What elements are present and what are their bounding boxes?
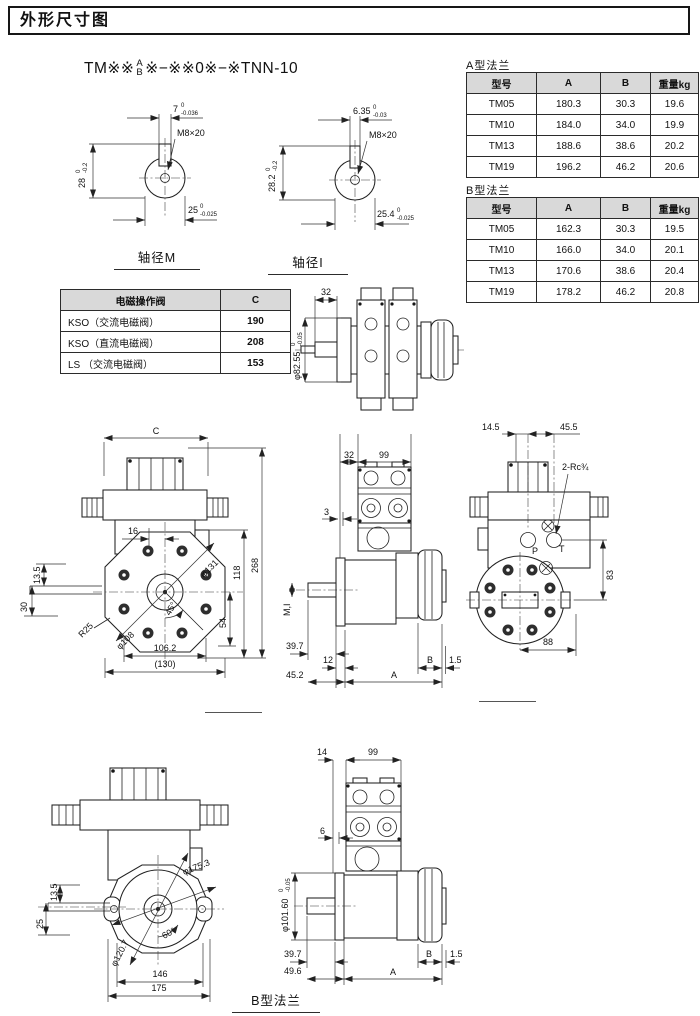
- page-title: 外形尺寸图: [8, 6, 690, 35]
- header-row: 电磁操作阀 C: [61, 290, 291, 311]
- dia-tol-lo: -0.025: [397, 216, 415, 222]
- dia-tol-lo: -0.025: [200, 212, 218, 218]
- table-row: LS （交流电磁阀） 153: [61, 353, 291, 374]
- dim-99-label: 99: [368, 747, 378, 757]
- header-row: 型号 A B 重量kg: [467, 73, 699, 94]
- dim-6-label: 6: [320, 826, 325, 836]
- dim-b-label: B: [426, 949, 432, 959]
- dim-3-label: 3: [324, 507, 329, 517]
- shaft-i-dimensions: 6.35 0 -0.03 28.2 0 -0.2 M8×20 25.4 0 -0…: [266, 105, 415, 224]
- separator-line-2: [479, 701, 536, 702]
- column-header: 重量kg: [651, 73, 699, 94]
- shaft-m-caption: 轴径M: [114, 247, 200, 270]
- cell: 20.6: [651, 157, 699, 178]
- dim-118-label: 118: [232, 566, 242, 580]
- table-row: TM13 170.6 38.6 20.4: [467, 261, 699, 282]
- dim-32-label: 32: [344, 450, 354, 460]
- table-row: KSO（直流电磁阀） 208: [61, 332, 291, 353]
- cell: 19.9: [651, 115, 699, 136]
- cell: 188.6: [537, 136, 601, 157]
- dia-tol-hi: 0: [397, 208, 401, 214]
- cell: 34.0: [601, 240, 651, 261]
- catalog-page: 外形尺寸图 TM※※ A B ※−※※0※−※TNN-10 7 0 -0.036…: [0, 0, 700, 1016]
- separator-line-1: [205, 712, 262, 713]
- cell: TM19: [467, 282, 537, 303]
- header-row: 型号 A B 重量kg: [467, 198, 699, 219]
- dim-12-label: 12: [323, 655, 333, 665]
- cell: 20.8: [651, 282, 699, 303]
- table-row: TM10 166.0 34.0 20.1: [467, 240, 699, 261]
- pump-top-view-drawing: 32 φ82.55 0 -0.05: [293, 278, 473, 420]
- cell: TM05: [467, 219, 537, 240]
- cell: 184.0: [537, 115, 601, 136]
- dia-101-60-tol-hi: 0: [279, 888, 285, 892]
- r25-label: R25: [76, 621, 95, 640]
- height-tol-hi: 0: [76, 169, 82, 173]
- dim-a-label: A: [391, 670, 397, 680]
- pump-top-outline: [295, 288, 465, 410]
- cell: 46.2: [601, 157, 651, 178]
- dim-54-label: 54: [218, 618, 228, 628]
- column-header: B: [601, 198, 651, 219]
- table-row: TM19 196.2 46.2 20.6: [467, 157, 699, 178]
- cell: 196.2: [537, 157, 601, 178]
- front-view-b-drawing: φ175.3 φ120.7 60° 13.5 25 146 175: [18, 753, 288, 1016]
- thread-label: M8×20: [369, 130, 397, 140]
- height-tol-lo: -0.2: [273, 160, 279, 171]
- shaft-i-caption: 轴径I: [268, 252, 348, 275]
- dia-82-tol-lo: -0.05: [298, 332, 304, 346]
- dim-88-label: 88: [543, 637, 553, 647]
- side-view-b-drawing: 14 99 6 φ101.60 0 -0.05 39.7 49.6 A B 1.…: [278, 738, 503, 1016]
- cell: 19.5: [651, 219, 699, 240]
- height-tol-lo: -0.2: [83, 162, 89, 173]
- dim-39-7-label: 39.7: [284, 949, 302, 959]
- valve-stack: [346, 778, 401, 871]
- cell: LS （交流电磁阀）: [61, 353, 221, 374]
- shaft-m-dimensions: 7 0 -0.036 28 0 -0.2 M8×20 25 0 -0.025: [76, 103, 218, 220]
- dim-106-2-label: 106.2: [154, 643, 177, 653]
- cell: 20.4: [651, 261, 699, 282]
- column-header: 型号: [467, 198, 537, 219]
- dim-175-label: 175: [151, 983, 166, 993]
- key-width-tol-hi: 0: [181, 103, 185, 109]
- dim-13-5-label: 13.5: [32, 566, 42, 584]
- cell: TM05: [467, 94, 537, 115]
- shaft-i-drawing: 6.35 0 -0.03 28.2 0 -0.2 M8×20 25.4 0 -0…: [243, 92, 443, 248]
- ports-label: 2-Rc¾: [562, 462, 589, 472]
- dim-45-5-label: 45.5: [560, 422, 578, 432]
- port-p-label: P: [532, 546, 538, 556]
- cell: 30.3: [601, 219, 651, 240]
- table-row: TM05 162.3 30.3 19.5: [467, 219, 699, 240]
- model-ab-stack: A B: [136, 59, 143, 78]
- model-prefix: TM※※: [84, 59, 134, 78]
- cell: 20.1: [651, 240, 699, 261]
- key-width-tol-lo: -0.036: [181, 111, 199, 117]
- b-flange-caption: B型法兰: [232, 990, 320, 1013]
- height-label: 28: [77, 178, 87, 188]
- dia-82-tol-hi: 0: [291, 342, 297, 346]
- key-width-tol-hi: 0: [373, 105, 377, 111]
- cell: 20.2: [651, 136, 699, 157]
- port-t-label: T: [559, 544, 565, 554]
- cell: 46.2: [601, 282, 651, 303]
- dim-146-label: 146: [152, 969, 167, 979]
- rear-view-a-drawing: 14.5 45.5 2-Rc¾ P T 83 88: [458, 418, 693, 698]
- dia-101-60-label: φ101.60: [280, 899, 290, 932]
- cell: 180.3: [537, 94, 601, 115]
- model-code: TM※※ A B ※−※※0※−※TNN-10: [84, 50, 298, 86]
- dim-14-5-label: 14.5: [482, 422, 500, 432]
- dim-99-label: 99: [379, 450, 389, 460]
- dim-130-label: (130): [154, 659, 175, 669]
- column-header: A: [537, 198, 601, 219]
- dia-label: 25: [188, 205, 198, 215]
- table-row: TM10 184.0 34.0 19.9: [467, 115, 699, 136]
- thread-label: M8×20: [177, 128, 205, 138]
- dim-49-6-label: 49.6: [284, 966, 302, 976]
- cell: 208: [221, 332, 291, 353]
- cell: TM13: [467, 261, 537, 282]
- dim-45-2-label: 45.2: [286, 670, 304, 680]
- flange-b-table: 型号 A B 重量kg TM05 162.3 30.3 19.5 TM10 16…: [466, 197, 699, 303]
- dia-tol-hi: 0: [200, 204, 204, 210]
- cell: 34.0: [601, 115, 651, 136]
- pump-rear-outline: [466, 520, 590, 650]
- dim-268-label: 268: [250, 558, 260, 573]
- flange-a-table-caption: A型法兰: [466, 57, 510, 73]
- column-header: A: [537, 73, 601, 94]
- flange-b-table-caption: B型法兰: [466, 182, 510, 198]
- dia-120-7-label: φ120.7: [109, 938, 131, 968]
- height-label: 28.2: [267, 174, 277, 192]
- cell: 30.3: [601, 94, 651, 115]
- cell: KSO（直流电磁阀）: [61, 332, 221, 353]
- pump-side-outline: [296, 550, 446, 626]
- model-stack-b: B: [136, 68, 143, 78]
- table-row: TM05 180.3 30.3 19.6: [467, 94, 699, 115]
- side-view-a-drawing: 32 99 3 M,I 39.7 12 45.2 A B 1.5: [278, 418, 483, 703]
- cell: KSO（交流电磁阀）: [61, 311, 221, 332]
- cell: 170.6: [537, 261, 601, 282]
- column-header: C: [221, 290, 291, 311]
- model-suffix: ※−※※0※−※TNN-10: [145, 59, 298, 78]
- column-header: B: [601, 73, 651, 94]
- dim-13-5-label: 13.5: [49, 883, 59, 901]
- cell: TM10: [467, 240, 537, 261]
- cell: TM10: [467, 115, 537, 136]
- valve-stack: [358, 462, 411, 551]
- dim-b-label: B: [427, 655, 433, 665]
- table-row: TM13 188.6 38.6 20.2: [467, 136, 699, 157]
- shaft-i-outline: [279, 116, 381, 230]
- dim-1-5-label: 1.5: [450, 949, 463, 959]
- cell: 19.6: [651, 94, 699, 115]
- valve-assembly: [52, 768, 228, 830]
- height-tol-hi: 0: [266, 167, 272, 171]
- flange-a-table: 型号 A B 重量kg TM05 180.3 30.3 19.6 TM10 18…: [466, 72, 699, 178]
- dim-c-label: C: [153, 426, 160, 436]
- column-header: 重量kg: [651, 198, 699, 219]
- dia-label: 25.4: [377, 209, 395, 219]
- dim-30-label: 30: [19, 602, 29, 612]
- key-width-label: 7: [173, 104, 178, 114]
- pump-side-outline: [294, 868, 446, 942]
- pump-top-dimensions: 32 φ82.55 0 -0.05: [291, 287, 341, 382]
- key-width-tol-lo: -0.03: [373, 113, 387, 119]
- cell: TM19: [467, 157, 537, 178]
- cell: TM13: [467, 136, 537, 157]
- front-view-a-drawing: C 16 13.5 30 R25 φ108 φ131 45° 54 118 26…: [18, 418, 283, 703]
- cell: 38.6: [601, 136, 651, 157]
- dim-39-7-label: 39.7: [286, 641, 304, 651]
- dim-32-label: 32: [321, 287, 331, 297]
- shaft-m-outline: [89, 114, 191, 226]
- dia-82-label: φ82.55: [292, 352, 302, 380]
- cell: 166.0: [537, 240, 601, 261]
- shaft-type-label: M,I: [282, 604, 292, 617]
- cell: 190: [221, 311, 291, 332]
- solenoid-valve-table: 电磁操作阀 C KSO（交流电磁阀） 190 KSO（直流电磁阀） 208 LS…: [60, 289, 291, 374]
- table-row: TM19 178.2 46.2 20.8: [467, 282, 699, 303]
- shaft-m-drawing: 7 0 -0.036 28 0 -0.2 M8×20 25 0 -0.025: [55, 92, 255, 244]
- table-row: KSO（交流电磁阀） 190: [61, 311, 291, 332]
- cell: 38.6: [601, 261, 651, 282]
- dim-25-label: 25: [35, 919, 45, 929]
- cell: 162.3: [537, 219, 601, 240]
- column-header: 电磁操作阀: [61, 290, 221, 311]
- cell: 153: [221, 353, 291, 374]
- dim-a-label: A: [390, 967, 396, 977]
- dim-83-label: 83: [605, 570, 615, 580]
- dia-101-60-tol-lo: -0.05: [286, 878, 292, 892]
- cell: 178.2: [537, 282, 601, 303]
- dim-16-label: 16: [128, 526, 138, 536]
- key-width-label: 6.35: [353, 106, 371, 116]
- dim-14-label: 14: [317, 747, 327, 757]
- column-header: 型号: [467, 73, 537, 94]
